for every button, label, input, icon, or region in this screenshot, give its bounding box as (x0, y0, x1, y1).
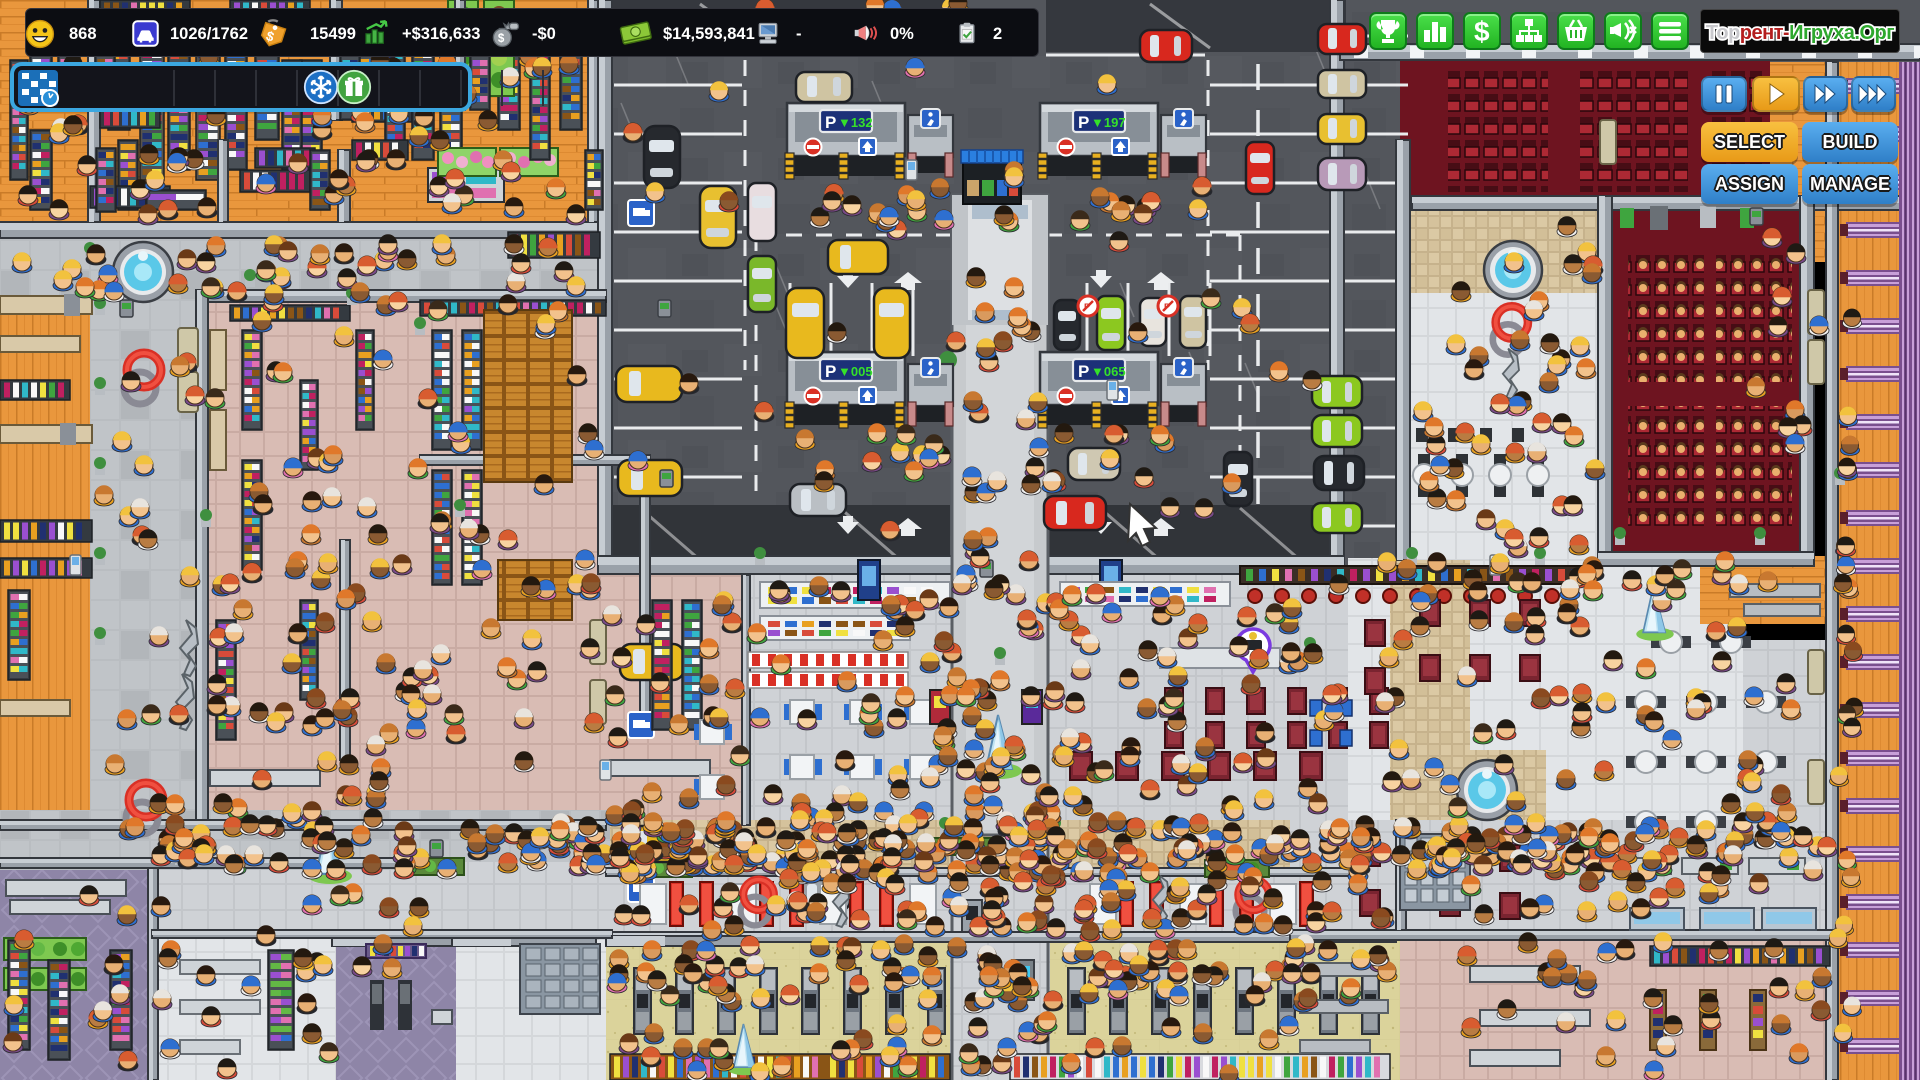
svg-text:P: P (1164, 302, 1170, 312)
svg-text:P: P (1078, 362, 1089, 381)
svg-text:▼132: ▼132 (838, 115, 873, 130)
svg-text:$: $ (1474, 16, 1490, 47)
svg-text:Торрент-Игруха.Орг: Торрент-Игруха.Орг (1706, 22, 1894, 44)
svg-text:P: P (1084, 302, 1090, 312)
svg-text:P: P (825, 113, 836, 132)
svg-text:$: $ (498, 32, 505, 45)
svg-text:▼065: ▼065 (1091, 364, 1126, 379)
svg-text:P: P (1078, 113, 1089, 132)
svg-text:▼005: ▼005 (838, 364, 873, 379)
svg-text:P: P (825, 362, 836, 381)
svg-text:▼197: ▼197 (1091, 115, 1126, 130)
